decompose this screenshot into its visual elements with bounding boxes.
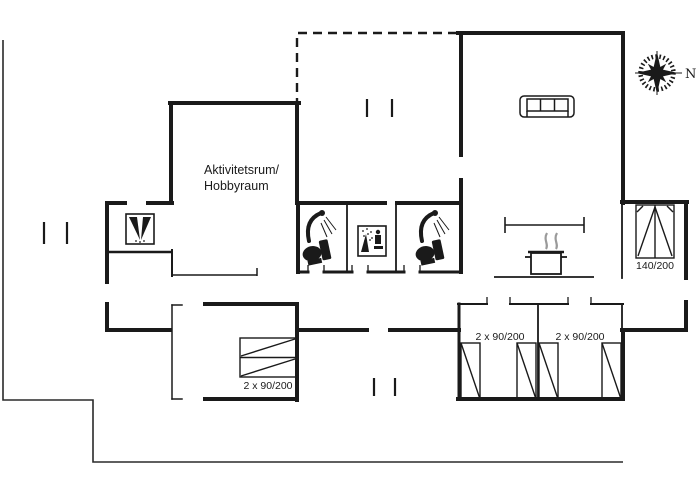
kitchen-table-symbol: [505, 217, 584, 233]
activity-room-label: Hobbyraum: [204, 179, 269, 193]
north-label: N: [685, 67, 696, 82]
sofa-icon: [520, 96, 574, 117]
bunk-bed-label: 2 x 90/200: [243, 380, 292, 392]
toilet-icon: [413, 239, 444, 266]
double-bed-symbol: [636, 205, 674, 258]
pot-body: [531, 253, 561, 274]
hall-table-symbol: [172, 268, 257, 276]
toilet-icon: [300, 239, 331, 266]
twin-beds-left-label: 2 x 90/200: [475, 331, 524, 343]
floorplan-canvas: Aktivitetsrum/ Hobbyraum 140/200 2 x 90/…: [0, 0, 700, 500]
shower-icon: [421, 210, 449, 241]
floorplan-drawing: Aktivitetsrum/ Hobbyraum 140/200 2 x 90/…: [0, 0, 700, 500]
cooking-pot-icon: [525, 233, 567, 274]
twin-beds-right-label: 2 x 90/200: [555, 331, 604, 343]
twin-bed-symbol: [461, 343, 536, 399]
sofa-cushions: [527, 99, 568, 111]
compass-rose-icon: [635, 51, 682, 95]
window-marks: [44, 99, 395, 396]
bathroom-1-fixtures: [300, 210, 336, 266]
compass-points-cardinal: [636, 52, 678, 94]
washbasin-icon: [126, 214, 154, 244]
carport-dashed-outline: [297, 33, 457, 103]
twin-bed-symbol: [539, 343, 621, 399]
steam-icon: [546, 233, 547, 249]
shower-icon: [308, 210, 336, 241]
bathroom-2-fixtures: [413, 210, 449, 266]
bunk-bed-symbol: [240, 338, 296, 377]
fixtures: [126, 210, 449, 266]
steam-icon: [556, 233, 557, 249]
walls: [107, 33, 687, 400]
activity-room-label: Aktivitetsrum/: [204, 163, 280, 177]
whirlpool-icon: [358, 226, 386, 256]
dashed-wall: [297, 33, 457, 103]
double-bed-label: 140/200: [636, 260, 674, 272]
